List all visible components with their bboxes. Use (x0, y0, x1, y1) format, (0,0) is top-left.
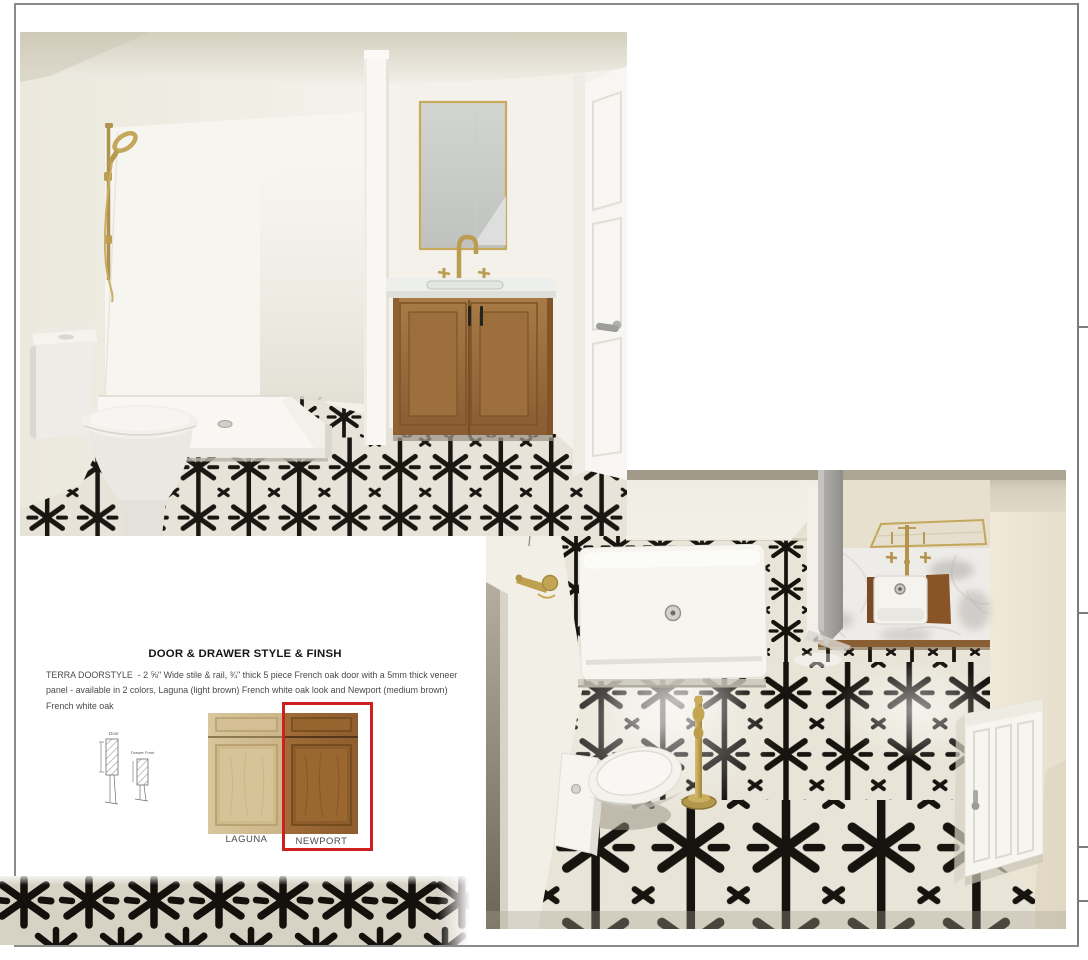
svg-text:Door: Door (109, 731, 119, 736)
svg-text:Drawer Front: Drawer Front (131, 750, 155, 755)
